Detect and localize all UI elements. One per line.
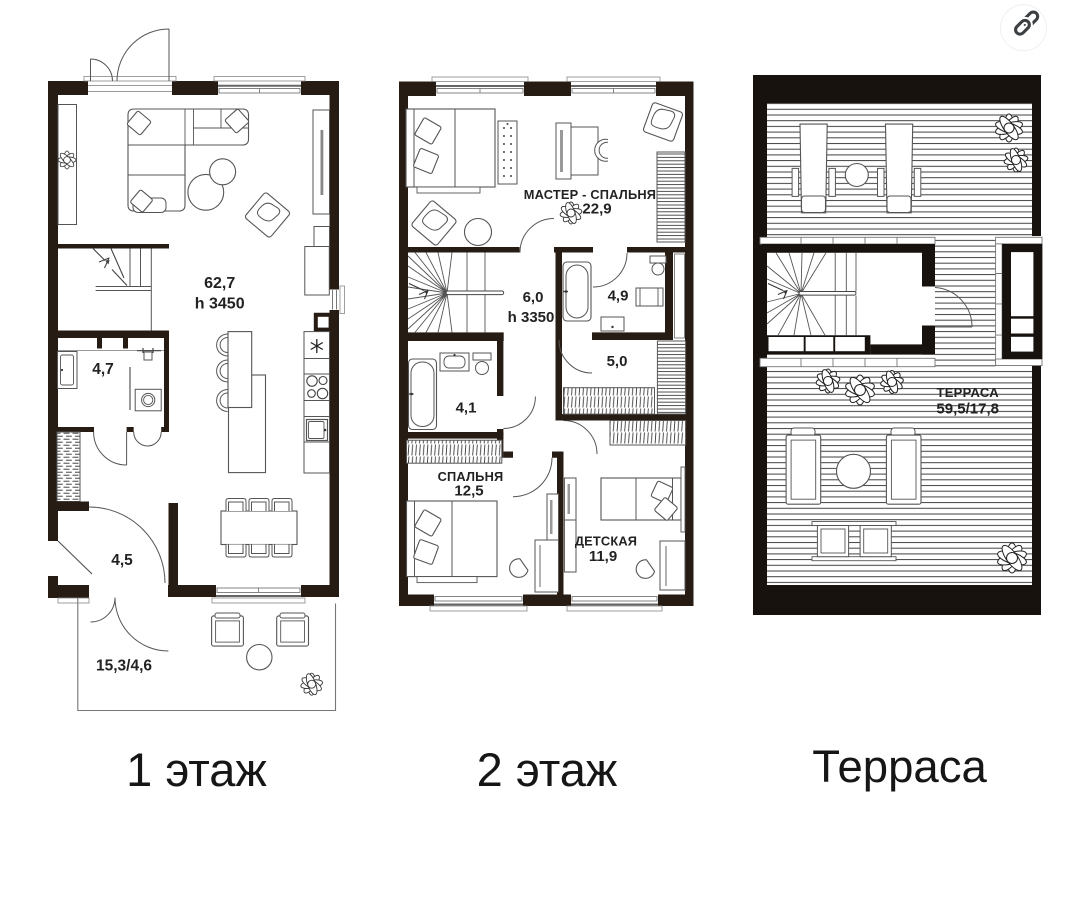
svg-text:ТЕРРАСА: ТЕРРАСА xyxy=(936,385,999,400)
svg-text:4,1: 4,1 xyxy=(456,400,477,417)
svg-text:22,9: 22,9 xyxy=(582,201,611,218)
svg-text:4,5: 4,5 xyxy=(111,552,133,569)
svg-text:15,3/4,6: 15,3/4,6 xyxy=(96,658,152,675)
svg-text:62,7: 62,7 xyxy=(204,275,235,292)
svg-text:12,5: 12,5 xyxy=(454,483,483,500)
svg-text:5,0: 5,0 xyxy=(607,353,628,370)
svg-text:6,0: 6,0 xyxy=(523,289,544,306)
svg-text:Терраса: Терраса xyxy=(812,741,987,792)
svg-text:h 3450: h 3450 xyxy=(195,296,245,313)
svg-text:1 этаж: 1 этаж xyxy=(126,743,267,796)
svg-text:ДЕТСКАЯ: ДЕТСКАЯ xyxy=(575,534,637,549)
svg-text:h 3350: h 3350 xyxy=(508,309,555,326)
svg-text:59,5/17,8: 59,5/17,8 xyxy=(936,401,999,418)
svg-text:4,7: 4,7 xyxy=(92,361,114,378)
svg-text:4,9: 4,9 xyxy=(608,288,629,305)
svg-text:11,9: 11,9 xyxy=(589,548,617,565)
svg-text:2 этаж: 2 этаж xyxy=(477,743,618,796)
